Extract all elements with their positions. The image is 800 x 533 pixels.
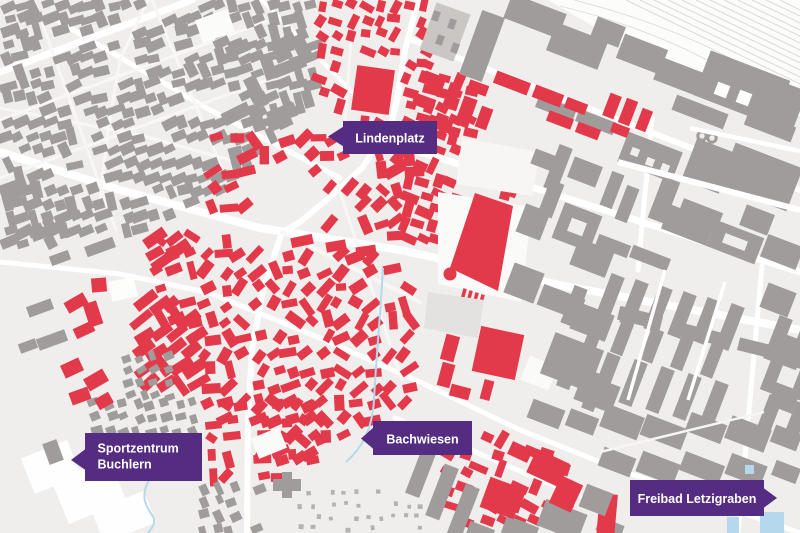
svg-text:Sportzentrum: Sportzentrum [98, 441, 179, 455]
svg-text:Bachwiesen: Bachwiesen [386, 432, 458, 446]
svg-text:Lindenplatz: Lindenplatz [355, 131, 424, 145]
svg-text:Freibad Letzigraben: Freibad Letzigraben [638, 492, 757, 506]
svg-text:Buchlern: Buchlern [98, 457, 152, 471]
